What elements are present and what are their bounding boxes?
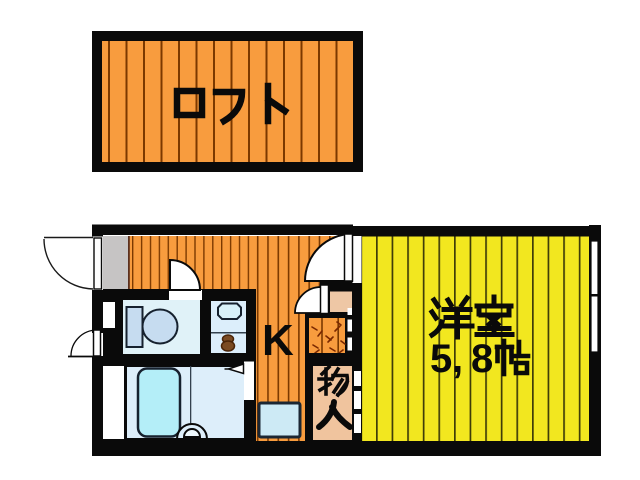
svg-text:,: , [452, 337, 463, 381]
svg-text:8: 8 [471, 337, 493, 381]
svg-text:5: 5 [430, 337, 452, 381]
svg-text:K: K [262, 316, 294, 365]
